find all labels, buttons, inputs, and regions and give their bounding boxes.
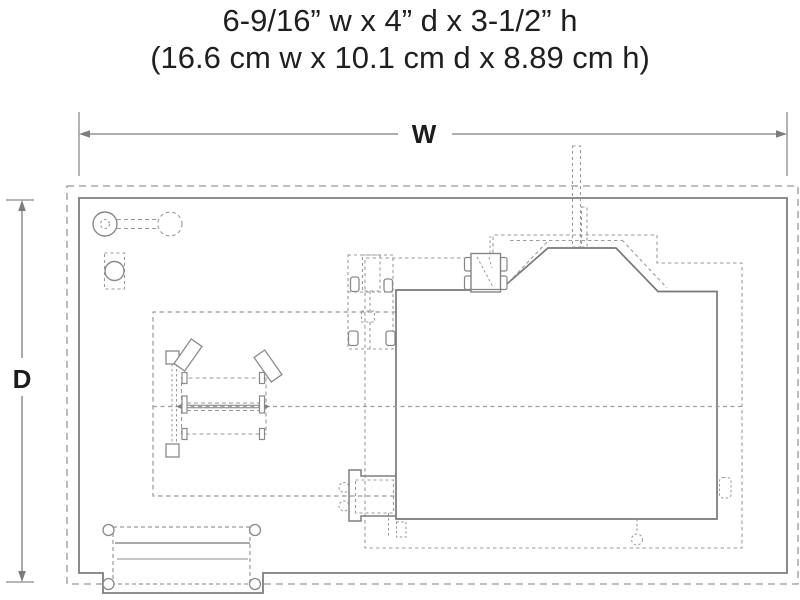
jig-square-bottom bbox=[166, 444, 179, 457]
width-dimension: W bbox=[79, 112, 787, 176]
truck-wheel-icon bbox=[351, 277, 360, 292]
jig-tick bbox=[260, 373, 265, 384]
pulley-solid-circle bbox=[93, 212, 117, 236]
platform-post-icon bbox=[103, 579, 114, 590]
jig-tick bbox=[182, 396, 187, 413]
jig-tick bbox=[182, 373, 187, 384]
truck-wheel-icon bbox=[384, 279, 393, 292]
platform-post-icon bbox=[250, 579, 261, 590]
platform-post-icon bbox=[103, 525, 114, 536]
width-label: W bbox=[412, 119, 437, 149]
depth-arrow-down-icon bbox=[18, 571, 26, 582]
width-arrow-left-icon bbox=[79, 130, 90, 138]
depth-label: D bbox=[13, 364, 32, 394]
depth-arrow-up-icon bbox=[18, 200, 26, 211]
jig-tick bbox=[182, 429, 187, 440]
jig-tick bbox=[260, 396, 265, 413]
jig-tick bbox=[260, 429, 265, 440]
width-arrow-right-icon bbox=[776, 130, 787, 138]
roller-circle bbox=[105, 262, 124, 281]
truck-wheel-icon bbox=[386, 331, 395, 346]
truck-wheel-icon bbox=[349, 331, 359, 346]
depth-dimension: D bbox=[6, 200, 34, 582]
cart-body bbox=[471, 254, 501, 293]
footprint-diagram: W D bbox=[0, 0, 800, 600]
platform-post-icon bbox=[250, 525, 261, 536]
